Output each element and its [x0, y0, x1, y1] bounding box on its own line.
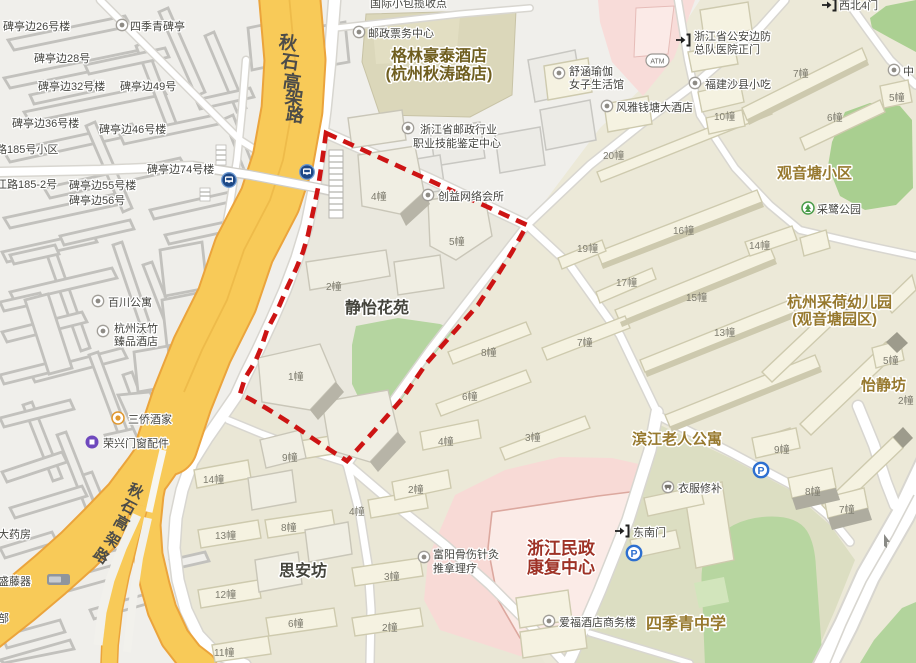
svg-text:荣兴门窗配件: 荣兴门窗配件: [103, 436, 169, 450]
svg-text:舒涵瑜伽: 舒涵瑜伽: [569, 64, 613, 78]
svg-text:创益网络会所: 创益网络会所: [438, 189, 504, 203]
svg-text:石: 石: [279, 51, 301, 73]
svg-text:ATM: ATM: [650, 59, 664, 66]
svg-text:碑亭边36号楼: 碑亭边36号楼: [12, 116, 79, 130]
svg-text:5幢: 5幢: [883, 354, 899, 367]
svg-text:4幢: 4幢: [349, 505, 365, 518]
svg-text:百川公寓: 百川公寓: [108, 295, 152, 309]
svg-text:17幢: 17幢: [616, 276, 637, 289]
svg-text:8幢: 8幢: [481, 346, 497, 359]
svg-text:2幢: 2幢: [382, 621, 398, 634]
svg-text:福建沙县小吃: 福建沙县小吃: [705, 77, 771, 91]
svg-text:东南门: 东南门: [633, 525, 666, 539]
svg-text:风雅钱塘大酒店: 风雅钱塘大酒店: [616, 100, 693, 114]
svg-text:6幢: 6幢: [462, 390, 478, 403]
svg-text:富阳骨伤针灸: 富阳骨伤针灸: [433, 547, 499, 561]
svg-text:三侨酒家: 三侨酒家: [128, 412, 172, 426]
svg-text:20幢: 20幢: [603, 149, 624, 162]
svg-text:14幢: 14幢: [749, 239, 770, 252]
svg-text:12幢: 12幢: [215, 588, 236, 601]
svg-text:5幢: 5幢: [449, 235, 465, 248]
svg-text:推拿理疗: 推拿理疗: [433, 561, 477, 575]
svg-text:碑亭边55号楼: 碑亭边55号楼: [69, 178, 136, 192]
svg-text:(杭州秋涛路店): (杭州秋涛路店): [386, 64, 493, 83]
svg-text:采鹭公园: 采鹭公园: [817, 202, 861, 216]
svg-text:7幢: 7幢: [839, 503, 855, 516]
svg-text:4幢: 4幢: [438, 435, 454, 448]
svg-text:浙江省公安边防: 浙江省公安边防: [694, 29, 771, 43]
svg-text:5幢: 5幢: [889, 91, 905, 104]
svg-text:部: 部: [0, 611, 9, 625]
svg-text:碑亭边56号: 碑亭边56号: [69, 193, 125, 207]
svg-text:15幢: 15幢: [686, 291, 707, 304]
svg-text:四季青碑亭: 四季青碑亭: [130, 19, 185, 33]
svg-text:碑亭边49号: 碑亭边49号: [120, 79, 176, 93]
svg-text:浙江省邮政行业: 浙江省邮政行业: [420, 122, 497, 136]
svg-text:13幢: 13幢: [215, 529, 236, 542]
svg-text:碑亭边28号: 碑亭边28号: [34, 51, 90, 65]
svg-text:国际小包揽收点: 国际小包揽收点: [370, 0, 447, 10]
svg-text:碑亭边26号楼: 碑亭边26号楼: [3, 19, 70, 33]
svg-text:10幢: 10幢: [714, 110, 735, 123]
svg-text:衣服修补: 衣服修补: [678, 481, 722, 495]
svg-text:女子生活馆: 女子生活馆: [569, 77, 624, 91]
svg-text:8幢: 8幢: [281, 521, 297, 534]
svg-text:邮政票务中心: 邮政票务中心: [368, 26, 434, 40]
svg-text:观音塘小区: 观音塘小区: [777, 164, 852, 182]
svg-text:2幢: 2幢: [326, 280, 342, 293]
svg-text:7幢: 7幢: [577, 336, 593, 349]
svg-text:江路185-2号: 江路185-2号: [0, 178, 57, 191]
svg-text:碑亭边74号楼: 碑亭边74号楼: [147, 162, 214, 176]
svg-text:19幢: 19幢: [577, 242, 598, 255]
svg-text:3幢: 3幢: [525, 431, 541, 444]
svg-text:康复中心: 康复中心: [527, 557, 595, 577]
svg-text:静怡花苑: 静怡花苑: [345, 298, 409, 317]
svg-text:中: 中: [903, 65, 914, 78]
svg-text:爱福酒店商务楼: 爱福酒店商务楼: [559, 615, 636, 629]
svg-text:碑亭边32号楼: 碑亭边32号楼: [38, 79, 105, 93]
svg-text:杭州沃竹: 杭州沃竹: [114, 321, 158, 335]
svg-text:怡静坊: 怡静坊: [861, 376, 906, 394]
svg-text:8幢: 8幢: [805, 485, 821, 498]
svg-text:16幢: 16幢: [673, 224, 694, 237]
svg-text:臻品酒店: 臻品酒店: [114, 334, 158, 348]
svg-text:滨江老人公寓: 滨江老人公寓: [632, 430, 722, 448]
svg-text:11幢: 11幢: [214, 646, 234, 659]
svg-text:(观音塘园区): (观音塘园区): [792, 310, 877, 328]
svg-text:总队医院正门: 总队医院正门: [694, 42, 760, 56]
svg-text:思安坊: 思安坊: [279, 561, 327, 580]
svg-text:3幢: 3幢: [384, 570, 400, 583]
svg-text:盛藤器: 盛藤器: [0, 574, 31, 588]
svg-text:6幢: 6幢: [288, 617, 304, 630]
svg-text:路185号小区: 路185号小区: [0, 143, 58, 156]
svg-text:14幢: 14幢: [203, 473, 224, 486]
svg-text:格林豪泰酒店: 格林豪泰酒店: [391, 46, 487, 65]
svg-text:大药房: 大药房: [0, 527, 31, 541]
svg-text:职业技能鉴定中心: 职业技能鉴定中心: [413, 136, 501, 150]
svg-text:四季青中学: 四季青中学: [646, 614, 726, 633]
svg-text:杭州采荷幼儿园: 杭州采荷幼儿园: [787, 293, 892, 311]
svg-text:1幢: 1幢: [288, 370, 304, 383]
svg-text:9幢: 9幢: [774, 443, 790, 456]
svg-text:西北4门: 西北4门: [839, 0, 878, 12]
svg-text:9幢: 9幢: [282, 451, 298, 464]
svg-text:2幢: 2幢: [408, 483, 424, 496]
svg-text:碑亭边46号楼: 碑亭边46号楼: [99, 122, 166, 136]
svg-text:13幢: 13幢: [714, 326, 735, 339]
svg-text:2幢: 2幢: [898, 394, 914, 407]
svg-text:浙江民政: 浙江民政: [527, 538, 596, 558]
svg-text:6幢: 6幢: [827, 111, 843, 124]
svg-text:7幢: 7幢: [793, 67, 809, 80]
svg-text:4幢: 4幢: [371, 190, 387, 203]
